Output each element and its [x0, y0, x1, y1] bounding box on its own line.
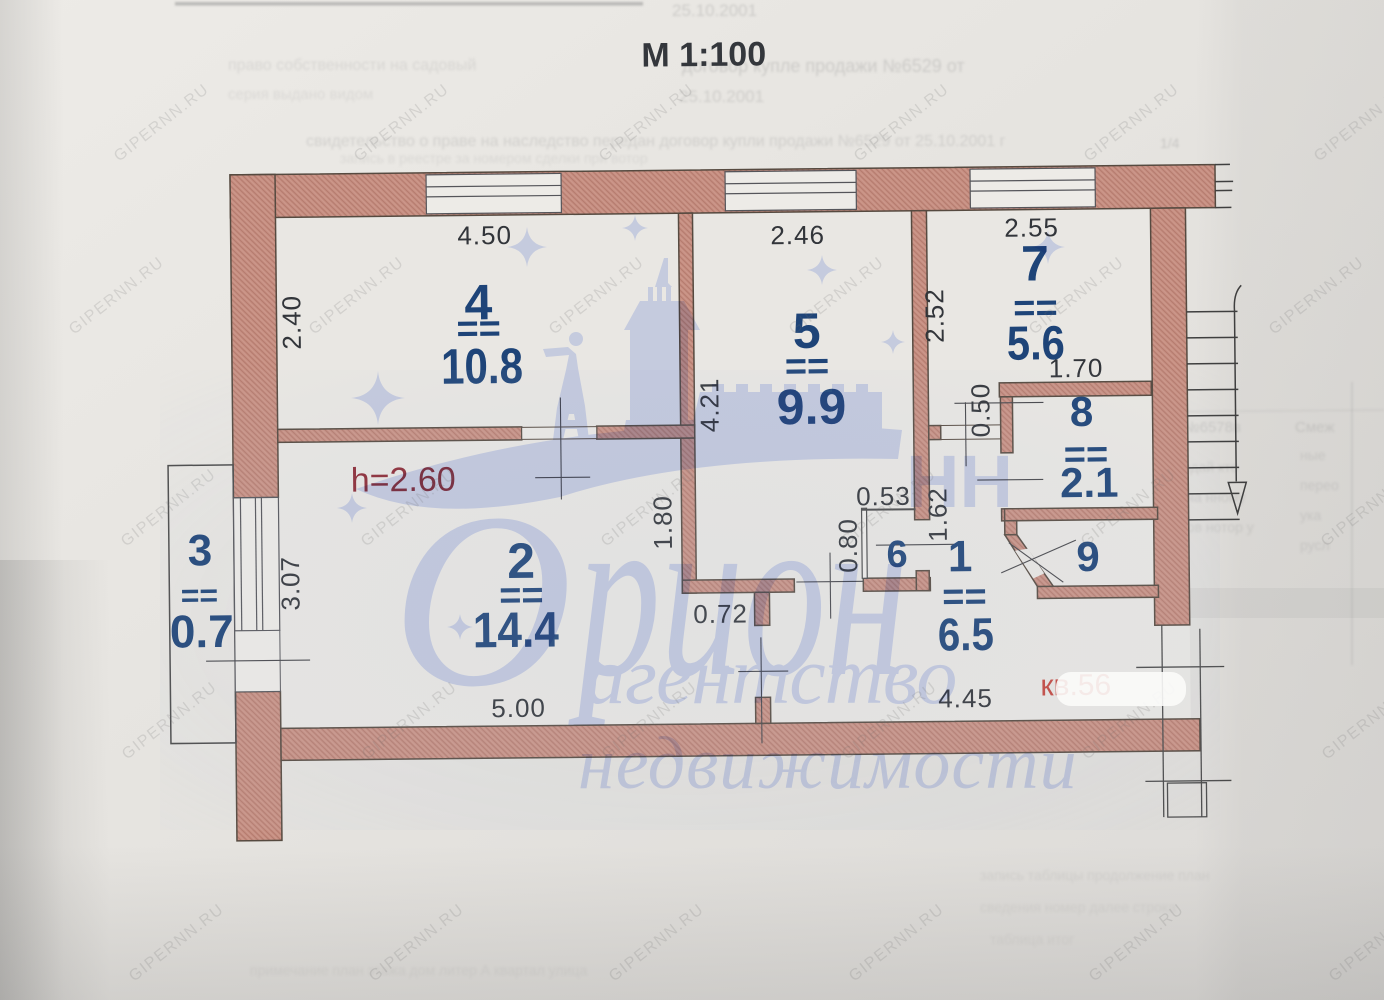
svg-text:недвижимости: недвижимости [578, 723, 1078, 805]
svg-text:2.40: 2.40 [276, 295, 307, 350]
svg-text:перео: перео [1300, 477, 1339, 493]
svg-text:серия выдано видом: серия выдано видом [228, 86, 373, 103]
svg-text:ука: ука [1300, 507, 1321, 523]
svg-text:таблица итог: таблица итог [990, 931, 1074, 947]
svg-text:запись таблицы продолжение пла: запись таблицы продолжение план [980, 867, 1210, 883]
svg-text:сведения номер далее строка: сведения номер далее строка [980, 899, 1176, 915]
svg-text:25.10.2001: 25.10.2001 [672, 1, 757, 20]
svg-text:2.55: 2.55 [1004, 212, 1059, 243]
svg-text:Смеж: Смеж [1295, 419, 1334, 436]
svg-text:примечание план этажа дом лите: примечание план этажа дом литер А кварта… [250, 962, 587, 978]
svg-text:свидетельство о праве на насле: свидетельство о праве на наследство пере… [306, 133, 1006, 150]
svg-text:ные: ные [1300, 447, 1326, 463]
svg-text:2.46: 2.46 [770, 220, 825, 251]
svg-text:право собственности на садовый: право собственности на садовый [228, 57, 476, 74]
svg-text:2.52: 2.52 [919, 288, 950, 343]
svg-text:М 1:100: М 1:100 [641, 35, 766, 74]
svg-text:4.50: 4.50 [457, 220, 512, 251]
svg-text:1/4: 1/4 [1160, 135, 1180, 151]
